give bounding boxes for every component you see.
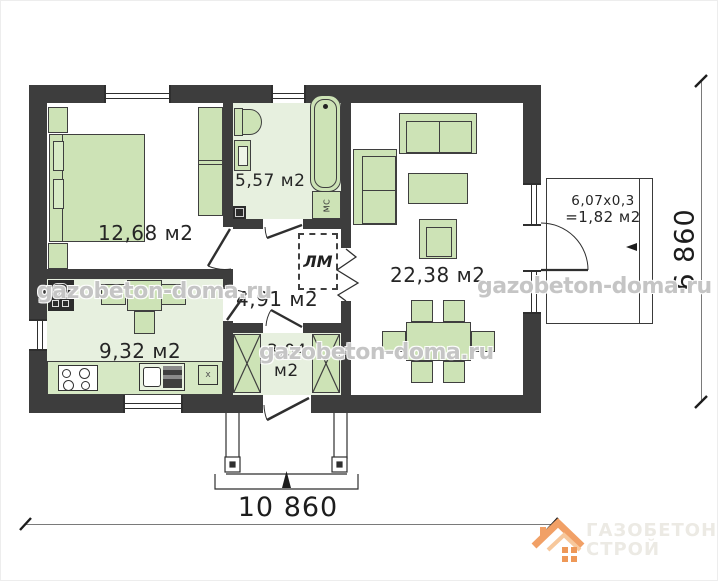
bathroom-door: [265, 225, 302, 238]
logo-house-icon: [534, 523, 582, 562]
floor-plan-canvas: МС x ЛМ: [0, 0, 718, 581]
watermark: gazobeton-doma.ru: [477, 274, 712, 299]
bedroom-door: [208, 229, 231, 269]
logo-text-line1: ГАЗОБЕТОН: [586, 521, 717, 540]
porch: [215, 413, 358, 489]
watermark: gazobeton-doma.ru: [259, 340, 494, 365]
entrance-door: [264, 398, 309, 420]
watermark: gazobeton-doma.ru: [37, 279, 272, 304]
terrace-door: [541, 223, 588, 270]
entry-door: [266, 310, 302, 327]
logo-text-line2: СТРОЙ: [586, 540, 660, 559]
opening-zigzag: [337, 249, 358, 301]
